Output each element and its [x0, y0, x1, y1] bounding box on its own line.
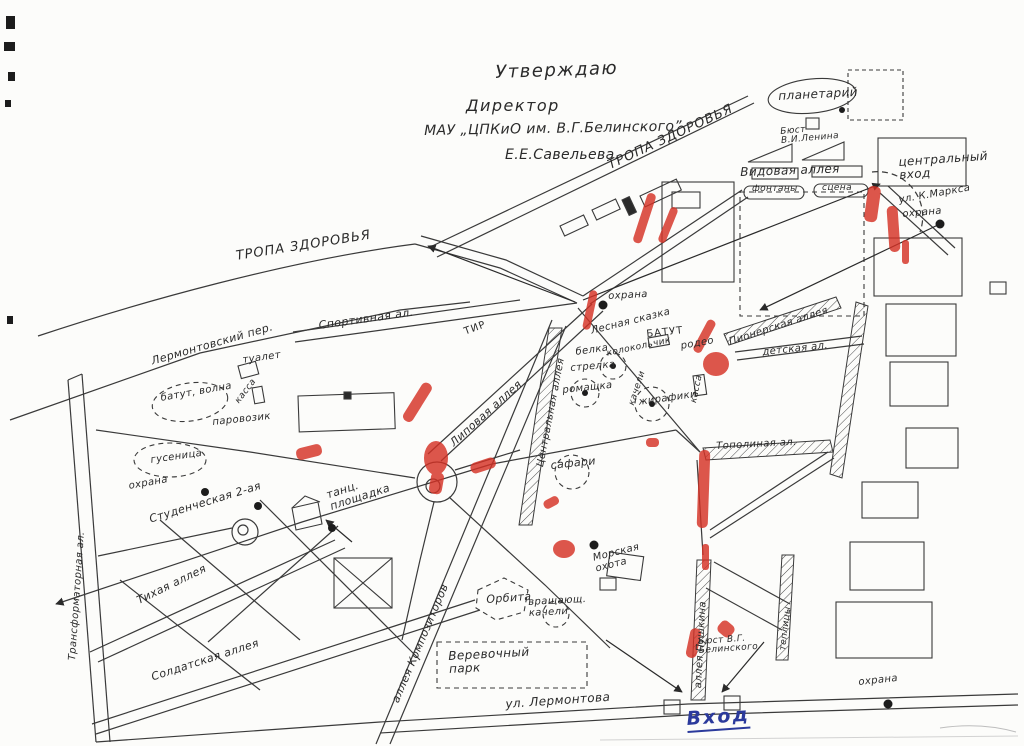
attraction-outlines — [134, 353, 669, 688]
scanned-park-map: Утверждаю Директор МАУ „ЦПКиО им. В.Г.Бе… — [0, 0, 1024, 746]
place-label-scena: сцена — [822, 184, 852, 193]
approval-line-2: Директор — [466, 98, 560, 115]
attraction-label-vrashch-kacheli: вращающ. качели — [528, 594, 613, 619]
place-label-fontany: фонтаны — [752, 185, 798, 194]
red-marker-highlights — [295, 185, 909, 659]
approval-line-4: Е.Е.Савельева. — [505, 148, 620, 163]
security-label-ohrana-center: охрана — [608, 290, 648, 303]
place-label-vhod: Вход — [686, 706, 751, 733]
